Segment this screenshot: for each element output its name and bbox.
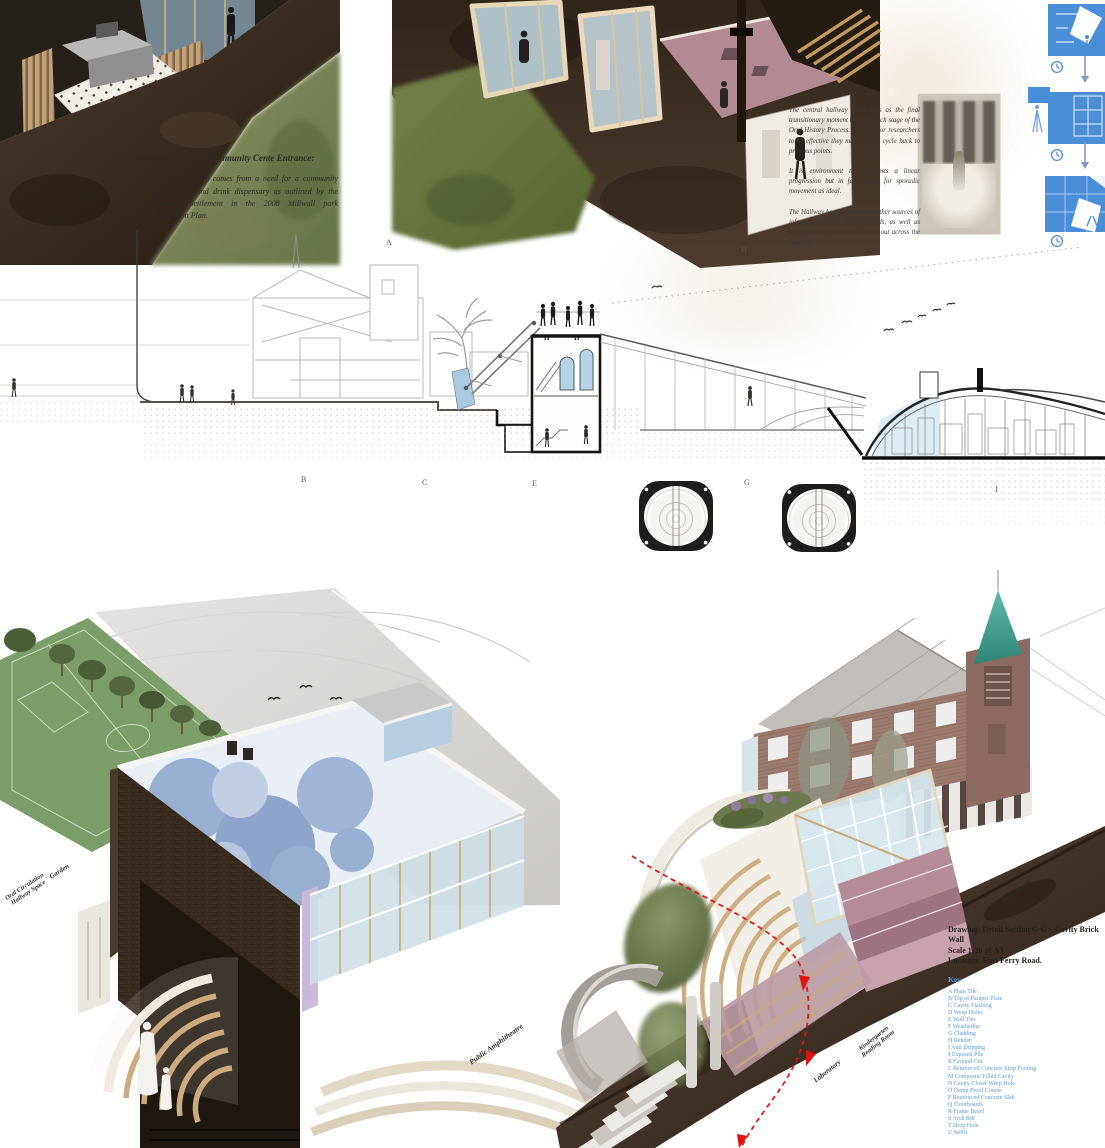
context-lines-right (1030, 608, 1105, 716)
detail-key-item: H Render (948, 1038, 1105, 1045)
detail-key-title: Key (948, 975, 1105, 984)
detail-key-item: J Exposed Pile (948, 1052, 1105, 1059)
phase-diagram-3 (1045, 172, 1105, 237)
detail-key-item: G Cladding (948, 1031, 1105, 1038)
phase-diagram-1 (1048, 4, 1105, 61)
hallway-paragraph-1: The central hallway space acts as the fi… (789, 106, 920, 157)
cafe-annotation-title: Bowsprit Cafe and Community Cente Entran… (136, 152, 338, 164)
detail-key-item: E Wall Ties (948, 1017, 1105, 1024)
scissor-ramp (452, 321, 540, 410)
detail-key-item: L Reinforced Concrete Strip Footing (948, 1066, 1105, 1073)
flow-arrow-icon-2 (1079, 142, 1091, 175)
hallway-paragraph-2: It is environment that suggests a linear… (789, 167, 920, 198)
detail-drawing-note: Drawing: Detail Section G-G – Cavity Bri… (948, 925, 1105, 1137)
section-marker-a: A (386, 238, 392, 247)
hallway-paragraph-3: The Hallway houses books and other sourc… (789, 208, 920, 249)
side-entry-wall (78, 900, 110, 1014)
tunnel-detail-drawing-2 (787, 489, 851, 547)
tunnel-detail-drawing-1 (644, 486, 708, 546)
detail-key-item: C Cavity Flashing (948, 1003, 1105, 1010)
structural-post (737, 0, 746, 142)
detail-key-item: P Reinforced Concrete Slab (948, 1095, 1105, 1102)
hallway-annotation: The central hallway space acts as the fi… (789, 106, 920, 258)
archive-photo (917, 93, 1001, 235)
detail-key-item: I Anti Dripping (948, 1045, 1105, 1052)
cafe-cutaway-render (0, 0, 340, 265)
presentation-board: Bowsprit Cafe and Community Cente Entran… (0, 0, 1105, 1148)
section-marker-g: G (744, 478, 750, 487)
clock-icon-1 (1050, 60, 1064, 79)
context-building-linework (0, 233, 528, 398)
clock-icon-3 (1050, 234, 1064, 253)
detail-key-list: A Plain TileB Top of Parapet PlateC Cavi… (948, 989, 1105, 1138)
section-cut-tower (532, 301, 600, 452)
detail-key-item: M Composite Filled Cavity (948, 1074, 1105, 1081)
rooftop-figures (541, 301, 594, 327)
cafe-annotation: Bowsprit Cafe and Community Cente Entran… (136, 152, 338, 223)
window-bay-1 (472, 2, 566, 96)
detail-key-item: D Weep Holes (948, 1010, 1105, 1017)
section-marker-e: E (532, 479, 537, 488)
white-column-2 (710, 982, 721, 1070)
section-marker-h: H (741, 245, 747, 254)
bottom-renders-artwork (0, 560, 1105, 1148)
detail-key-item: T Drop Hole (948, 1123, 1105, 1130)
detail-key-item: U Soffit (948, 1130, 1105, 1137)
detail-drawing-title: Drawing: Detail Section G-G – Cavity Bri… (948, 925, 1105, 946)
tunnel-detail-medallion-1 (639, 481, 713, 551)
tower-label-h-left: H (544, 334, 549, 342)
section-marker-i: I (995, 485, 998, 494)
detail-drawing-scale: Scale 1:20 @ A3 (948, 946, 1105, 956)
section-marker-c: C (422, 478, 427, 487)
section-marker-b: B (301, 475, 306, 484)
long-section-drawing (0, 230, 1105, 560)
kindergarten-annex-render (556, 770, 972, 1102)
detail-key-item: N Cavity Closer Weep Hole (948, 1081, 1105, 1088)
detail-key-item: S Arch Rib (948, 1116, 1105, 1123)
tower-label-h-right: H (574, 334, 579, 342)
white-column (686, 996, 697, 1088)
phase-diagram-2 (1028, 84, 1105, 149)
window-bay-2 (580, 8, 660, 130)
detail-key-item: R Frame Bevel (948, 1109, 1105, 1116)
tunnel-detail-medallion-2 (782, 484, 856, 552)
greenhouse-section (828, 368, 1105, 458)
photo-statue (953, 151, 965, 191)
detail-key-item: O Damp Proof Course (948, 1088, 1105, 1095)
detail-drawing-location: Location: East Ferry Road. (948, 956, 1105, 966)
clock-icon-2 (1050, 148, 1064, 167)
cafe-annotation-body: The Bowsprit cafe comes from a need for … (147, 173, 338, 223)
detail-key-item: Q Floorboards (948, 1102, 1105, 1109)
detail-key-item: F Weatherbar (948, 1024, 1105, 1031)
birds-midsection (652, 286, 955, 331)
detail-key-item: A Plain Tile (948, 989, 1105, 996)
church-spire (974, 590, 1022, 664)
detail-key-item: B Top of Parapet Plate (948, 996, 1105, 1003)
